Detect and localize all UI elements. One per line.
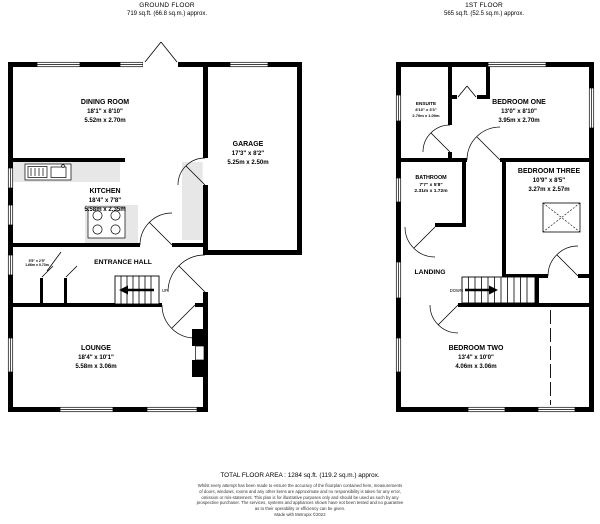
floorplan-drawing: UP: [0, 0, 600, 524]
total-floor-area: TOTAL FLOOR AREA : 1284 sq.ft. (119.2 sq…: [0, 472, 600, 479]
sink-icon: [25, 164, 71, 180]
fireplace: [192, 329, 204, 377]
room-label-bedroom-two: BEDROOM TWO 13'4" x 10'0" 4.06m x 3.06m: [449, 345, 504, 370]
stairs-down-label: DOWN: [450, 288, 463, 293]
ground-floor-title: GROUND FLOOR: [127, 2, 207, 9]
room-label-ensuite: ENSUITE 8'10" x 3'3" 2.70m x 1.00m: [412, 101, 439, 118]
room-label-bedroom-one: BEDROOM ONE 13'0" x 8'10" 3.95m x 2.70m: [492, 99, 546, 124]
room-label-lounge: LOUNGE 18'4" x 10'1" 5.58m x 3.06m: [75, 345, 116, 370]
stairs-up-label: UP: [162, 288, 168, 293]
stairs-down: DOWN: [450, 277, 535, 303]
ground-floor-header: GROUND FLOOR 719 sq.ft. (66.8 sq.m.) app…: [127, 2, 207, 17]
stairs-up: UP: [115, 276, 168, 304]
first-floor-area: 565 sq.ft. (52.5 sq.m.) approx.: [444, 11, 524, 17]
disclaimer: Whilst every attempt has been made to en…: [0, 483, 600, 518]
skylight-icon: [543, 203, 580, 232]
room-label-cupboard: 5'5" x 2'5" 1.66m x 0.73m: [25, 258, 49, 267]
room-label-landing: LANDING: [415, 269, 446, 276]
first-floor-header: 1ST FLOOR 565 sq.ft. (52.5 sq.m.) approx…: [444, 2, 524, 17]
room-label-kitchen: KITCHEN 18'4" x 7'8" 5.58m x 2.35m: [84, 188, 125, 213]
room-label-bedroom-three: BEDROOM THREE 10'9" x 8'5" 3.27m x 2.57m: [518, 168, 580, 193]
windows: [8, 62, 268, 411]
room-label-garage: GARAGE 17'3" x 8'2" 5.25m x 2.50m: [227, 141, 268, 166]
room-label-dining-room: DINING ROOM 18'1" x 8'10" 5.52m x 2.70m: [81, 99, 129, 124]
room-label-bathroom: BATHROOM 7'7" x 5'8" 2.31m x 1.72m: [414, 175, 447, 194]
room-label-entrance-hall: ENTRANCE HALL: [94, 259, 152, 266]
ground-floor-area: 719 sq.ft. (66.8 sq.m.) approx.: [127, 11, 207, 17]
floorplan-canvas: UP: [0, 0, 600, 524]
credit: Made with Metropix ©2022: [0, 512, 600, 518]
first-floor-title: 1ST FLOOR: [444, 2, 524, 9]
ground-floor-plan: UP: [8, 42, 302, 412]
walls: [8, 62, 302, 412]
footer: TOTAL FLOOR AREA : 1284 sq.ft. (119.2 sq…: [0, 472, 600, 518]
